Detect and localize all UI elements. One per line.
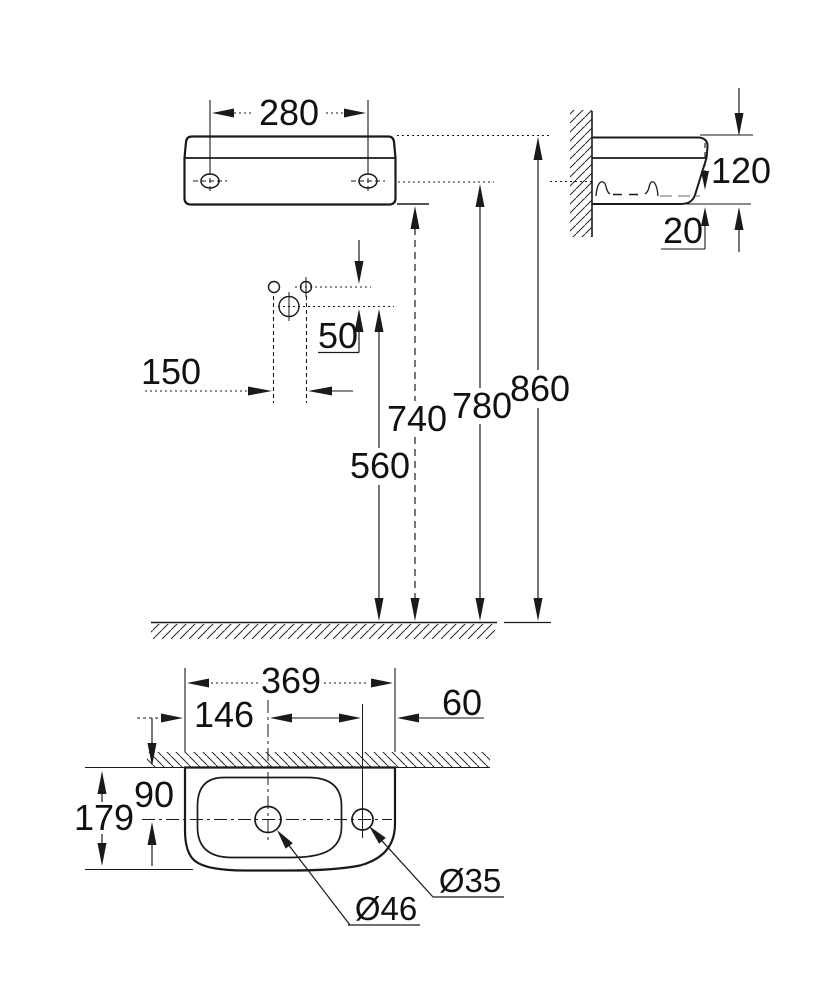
label-side-hole-diameter: Ø35 [439, 862, 501, 899]
fixing-hole-small [269, 282, 280, 293]
label-overall-depth: 179 [74, 797, 134, 838]
label-overall-width: 369 [261, 660, 321, 701]
label-side-hole-offset: 60 [442, 682, 482, 723]
washbasin-dimension-drawing: 280 50 150 560 740 780 860 120 20 369 14… [0, 0, 834, 1000]
label-hole-spacing-width: 280 [259, 92, 319, 133]
label-tap-hole-offset: 50 [318, 315, 358, 356]
label-rim-height: 860 [510, 368, 570, 409]
side-interior-left-bump [596, 182, 610, 196]
floor-line [151, 623, 551, 640]
label-side-body-height: 120 [711, 150, 771, 191]
dim-146-60 [137, 714, 484, 723]
side-interior-right-bump [645, 182, 658, 196]
top-wall-hatch [147, 752, 490, 767]
label-hole-depth-from-wall: 90 [134, 774, 174, 815]
label-tap-hole-spacing: 150 [141, 351, 201, 392]
mounting-hole-left [193, 170, 227, 192]
wall-hatch [570, 110, 592, 237]
front-basin-outline [185, 137, 396, 205]
side-profile-rim [592, 138, 708, 159]
label-drain-center-offset: 146 [194, 694, 254, 735]
label-side-bottom-gap: 20 [663, 210, 703, 251]
label-mounting-hole-height: 780 [452, 385, 512, 426]
label-basin-bottom-height: 740 [387, 398, 447, 439]
label-drain-diameter: Ø46 [355, 890, 417, 927]
side-profile-body [592, 158, 707, 204]
front-view [145, 100, 550, 621]
top-bowl-outline [198, 778, 342, 858]
label-drain-height: 560 [350, 445, 410, 486]
technical-drawing-canvas: 280 50 150 560 740 780 860 120 20 369 14… [0, 0, 834, 1000]
mounting-hole-right [351, 170, 385, 192]
